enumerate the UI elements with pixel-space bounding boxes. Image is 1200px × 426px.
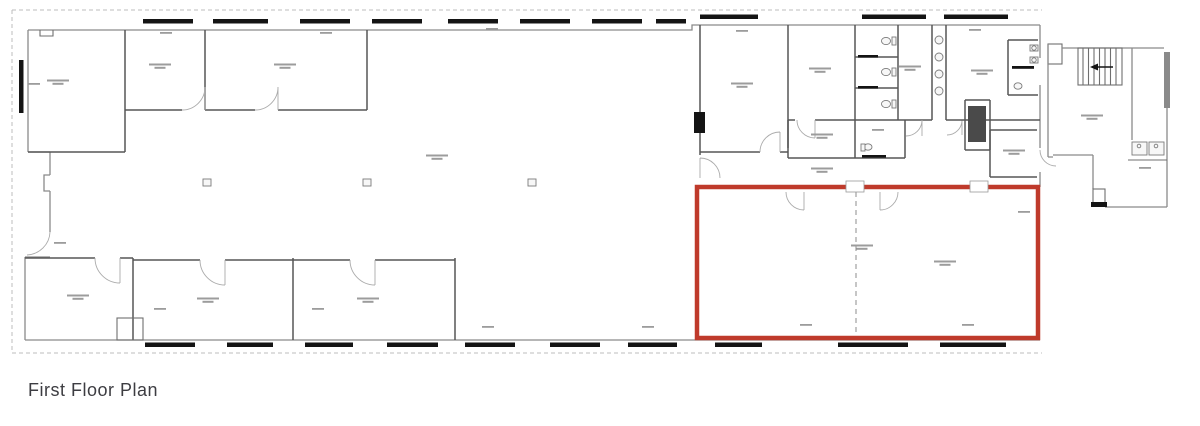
room-label — [731, 83, 753, 85]
room-label — [363, 301, 374, 303]
room-label — [160, 32, 172, 34]
window — [862, 15, 926, 20]
room-label — [872, 129, 884, 131]
room-label — [426, 155, 448, 157]
window — [592, 19, 642, 24]
room-label — [962, 324, 974, 326]
riser-shaft — [694, 112, 705, 133]
room-label — [320, 32, 332, 34]
room-label — [1009, 153, 1020, 155]
suite-door-jamb — [970, 181, 988, 192]
plan-caption: First Floor Plan — [28, 380, 158, 401]
top-left-rooms — [28, 30, 367, 152]
room-label — [47, 80, 69, 82]
room-label — [54, 242, 66, 244]
kitchenette-sinks — [1128, 142, 1167, 160]
room-label — [1018, 211, 1030, 213]
window — [715, 343, 762, 348]
room-label — [274, 64, 296, 66]
room-label — [53, 83, 64, 85]
room-label — [811, 168, 833, 170]
stair-wing — [1048, 44, 1170, 207]
window — [520, 19, 570, 24]
room-label — [203, 301, 214, 303]
room-label — [905, 69, 916, 71]
room-label — [857, 248, 868, 250]
sink-fixtures — [935, 36, 943, 95]
window — [387, 343, 438, 348]
floor-plan-page: First Floor Plan — [0, 0, 1200, 426]
room-label — [1087, 118, 1098, 120]
window — [628, 343, 677, 348]
room-label — [971, 70, 993, 72]
window — [19, 60, 24, 113]
window — [143, 19, 193, 24]
window — [448, 19, 498, 24]
room-label — [197, 298, 219, 300]
window — [465, 343, 515, 348]
window — [550, 343, 600, 348]
window — [227, 343, 273, 348]
room-label — [736, 30, 748, 32]
toilet-fixtures — [882, 37, 897, 108]
window — [300, 19, 350, 24]
room-label — [977, 73, 988, 75]
window — [305, 343, 353, 348]
room-label — [815, 71, 826, 73]
suite-door-jamb — [846, 181, 864, 192]
room-label — [67, 295, 89, 297]
room-label — [737, 86, 748, 88]
room-label — [969, 29, 981, 31]
room-label — [1003, 150, 1025, 152]
bottom-left-rooms — [25, 258, 455, 340]
site-boundary-dashed — [12, 10, 1042, 353]
room-label — [899, 66, 921, 68]
room-label — [73, 298, 84, 300]
room-label — [280, 67, 291, 69]
window — [372, 19, 422, 24]
room-label — [642, 326, 654, 328]
room-label — [312, 308, 324, 310]
room-label — [28, 83, 40, 85]
room-label — [155, 67, 166, 69]
room-label — [482, 326, 494, 328]
floor-plan-drawing — [0, 0, 1200, 426]
party-wall — [1164, 52, 1170, 108]
staircase — [1078, 48, 1122, 85]
duct-shaft — [968, 106, 986, 142]
window — [656, 19, 686, 24]
column — [203, 179, 211, 186]
room-label — [811, 134, 833, 136]
window — [944, 15, 1008, 20]
wc-and-hallway-block — [694, 25, 1056, 178]
room-label — [357, 298, 379, 300]
room-label — [940, 264, 951, 266]
room-label — [800, 324, 812, 326]
open-plan-area — [27, 179, 536, 255]
window — [213, 19, 268, 24]
room-label — [817, 171, 828, 173]
room-label — [1139, 167, 1151, 169]
room-label — [809, 68, 831, 70]
column — [528, 179, 536, 186]
red-highlight-outline — [697, 187, 1038, 338]
column — [363, 179, 371, 186]
illegible-room-labels — [28, 28, 1151, 328]
highlighted-suite — [697, 181, 1038, 338]
window — [940, 343, 1006, 348]
room-label — [817, 137, 828, 139]
room-label — [1081, 115, 1103, 117]
entrance-step — [1091, 202, 1107, 207]
room-label — [432, 158, 443, 160]
room-label — [934, 261, 956, 263]
window — [838, 343, 908, 348]
room-label — [154, 308, 166, 310]
window — [145, 343, 195, 348]
room-label — [149, 64, 171, 66]
room-label — [486, 28, 498, 30]
window — [700, 15, 758, 20]
room-label — [851, 245, 873, 247]
